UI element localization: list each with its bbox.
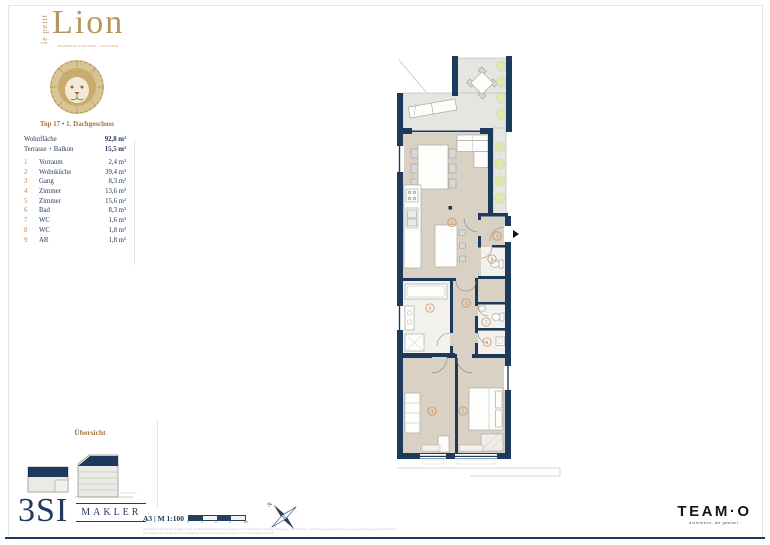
room-row: 4Zimmer13,6 m² [24, 188, 126, 198]
north-label: N [267, 501, 275, 509]
room-row: 6Bad8,3 m² [24, 207, 126, 217]
broker-label: MAKLER [76, 503, 146, 522]
disclaimer: Alle Pläne und Flächenangaben sind Vorab… [143, 527, 573, 535]
overview-label: Übersicht [30, 428, 150, 437]
panel-divider-top [134, 140, 135, 265]
lion-emblem-icon [45, 54, 109, 118]
balcony-outline [397, 460, 560, 476]
sheet-format-scale: A3 | M 1:100 [143, 514, 184, 523]
room-row: 3Gang8,3 m² [24, 178, 126, 188]
room-row: 8WC1,8 m² [24, 227, 126, 237]
summary-label: Terrasse + Balkon [24, 146, 73, 156]
dining-table [411, 145, 456, 189]
room-row: 1Vorraum2,4 m² [24, 159, 126, 169]
floor-plan: 1 2 3 4 5 6 7 8 9 [393, 50, 568, 480]
room-row: 5Zimmer15,6 m² [24, 198, 126, 208]
room-list: 1Vorraum2,4 m² 2Wohnküche39,4 m² 3Gang8,… [24, 159, 126, 246]
sheet-bottom-rule [5, 537, 765, 539]
architect-tagline: Architektur, die gewinnt. [662, 521, 767, 525]
broker-logo: 3SI MAKLER [18, 494, 146, 528]
room-row: 2Wohnküche39,4 m² [24, 169, 126, 179]
wardrobe-room4 [405, 393, 420, 433]
architect-name: TEAM·O [662, 503, 767, 520]
svg-text:6: 6 [429, 306, 432, 312]
bathtub [405, 284, 447, 299]
logo-tagline: IM HERZEN VON WIEN | 1010 WIEN [42, 44, 134, 48]
svg-text:8: 8 [491, 257, 494, 263]
panel-divider-bottom [157, 420, 158, 508]
wardrobe-room5 [481, 434, 503, 451]
svg-text:9: 9 [486, 340, 489, 346]
washer-ar9 [496, 337, 505, 346]
summary-label: Wohnfläche [24, 136, 57, 146]
room-row: 9AR1,8 m² [24, 237, 126, 247]
radiator [422, 445, 440, 451]
roof-edge-line [399, 60, 426, 92]
area-summary: Wohnfläche 92,8 m² Terrasse + Balkon 15,… [24, 136, 126, 155]
svg-text:5: 5 [462, 409, 465, 415]
svg-text:4: 4 [431, 409, 434, 415]
entrance-arrow-icon [513, 230, 519, 238]
summary-value: 15,5 m² [105, 146, 126, 156]
summary-row: Wohnfläche 92,8 m² [24, 136, 126, 146]
svg-text:2: 2 [451, 221, 454, 227]
logo-prefix: le petit [40, 14, 49, 44]
scale-bar-ticks: 0 1 2 3 4m [188, 520, 254, 526]
plan-sheet: le petit Lion IM HERZEN VON WIEN | 1010 … [0, 0, 770, 545]
kitchen-island [435, 225, 466, 267]
svg-text:3: 3 [465, 301, 468, 307]
svg-text:1: 1 [496, 234, 499, 240]
room-row: 7WC1,6 m² [24, 217, 126, 227]
stove-column [449, 206, 453, 210]
summary-value: 92,8 m² [105, 136, 126, 146]
summary-row: Terrasse + Balkon 15,5 m² [24, 146, 126, 156]
kitchen-counter [404, 185, 421, 268]
svg-text:7: 7 [485, 320, 488, 326]
architect-logo: TEAM·O Architektur, die gewinnt. [662, 503, 767, 525]
logo-name: Lion [52, 4, 124, 41]
washbasin [405, 306, 414, 330]
shower [405, 334, 424, 351]
bed-room5 [469, 388, 503, 430]
broker-name: 3SI [18, 494, 68, 528]
radiator [459, 445, 483, 451]
unit-title: Top 17 • 1. Dachgeschoss [20, 120, 134, 128]
